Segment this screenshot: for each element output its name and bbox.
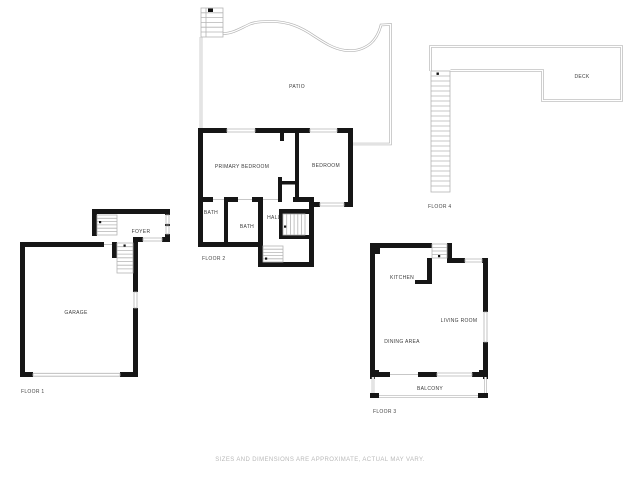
floorplan-sheet: PATIO PRIMARY BEDROOM BEDROOM BATH BATH … <box>0 0 640 480</box>
floor-3-stairs-icon <box>432 244 447 258</box>
room-label-dining-area: DINING AREA <box>384 339 420 345</box>
room-label-foyer: FOYER <box>132 229 151 235</box>
floorplan-canvas <box>0 0 640 480</box>
floor-3-label: FLOOR 3 <box>373 409 397 415</box>
floor-2-plan <box>198 128 353 267</box>
floor-4-stairs-icon <box>431 71 450 192</box>
disclaimer-text: SIZES AND DIMENSIONS ARE APPROXIMATE, AC… <box>0 457 640 463</box>
floor-2-hall-stairs-icon <box>283 214 305 235</box>
floor-2-label: FLOOR 2 <box>202 256 226 262</box>
floor-1-foyer-stairs-icon <box>97 215 117 235</box>
room-label-patio: PATIO <box>289 84 305 90</box>
floor-4-label: FLOOR 4 <box>428 204 452 210</box>
room-label-bedroom: BEDROOM <box>312 163 340 169</box>
floor-2-lower-stairs-icon <box>263 246 283 262</box>
room-label-hall: HALL <box>267 215 281 221</box>
patio-stairs-icon <box>201 8 223 37</box>
floor-4-plan <box>431 47 622 193</box>
room-label-bath-2: BATH <box>240 224 254 230</box>
garage-door-line <box>33 373 120 376</box>
room-label-living-room: LIVING ROOM <box>441 318 478 324</box>
room-label-garage: GARAGE <box>64 310 87 316</box>
room-label-balcony: BALCONY <box>417 386 443 392</box>
room-label-bath-1: BATH <box>204 210 218 216</box>
floor-1-label: FLOOR 1 <box>21 389 45 395</box>
floor-1-lower-stairs-icon <box>117 243 133 273</box>
room-label-kitchen: KITCHEN <box>390 275 414 281</box>
patio-outline <box>201 8 391 144</box>
room-label-primary-bedroom: PRIMARY BEDROOM <box>215 164 269 170</box>
room-label-deck: DECK <box>574 74 589 80</box>
